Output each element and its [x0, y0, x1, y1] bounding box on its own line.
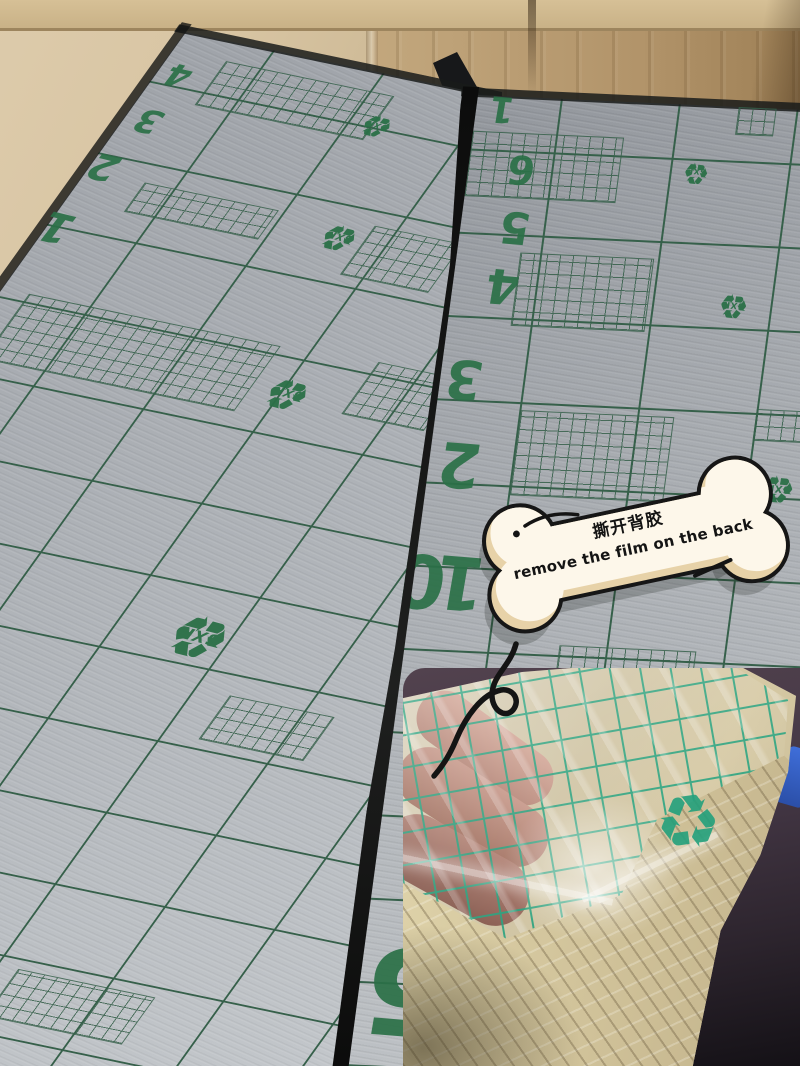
fine-grid-patch: [198, 695, 334, 761]
recycle-icon: ♻ SXP: [680, 156, 712, 188]
recycle-icon: ♻ SXP: [252, 369, 323, 418]
fine-grid-patch: [464, 131, 625, 203]
panel-number: 1: [486, 89, 517, 127]
recycle-label: SXP: [723, 299, 746, 310]
recycle-icon: ♻ SXP: [715, 287, 751, 324]
fine-grid-patch: [124, 182, 279, 239]
product-photo: 4 3 2 1 ♻ SXP ♻ SXP ♻ SXP ♻ SXP: [0, 0, 800, 1066]
recycle-icon: ♻: [650, 782, 726, 865]
panel-number: 5: [496, 203, 534, 249]
fine-grid-patch: [735, 107, 777, 136]
recycle-glyph: ♻: [650, 782, 726, 865]
fine-grid-patch: [0, 294, 281, 411]
panel-number: 3: [127, 103, 173, 138]
panel-number: 3: [441, 350, 487, 406]
fine-grid-patch: [0, 969, 155, 1045]
box-corner-crease: [528, 0, 536, 96]
cardboard-box-edge: [0, 0, 800, 31]
recycle-label: SXP: [686, 167, 706, 177]
fine-grid-patch: [511, 253, 655, 332]
recycle-icon: ♻ SXP: [151, 602, 249, 669]
